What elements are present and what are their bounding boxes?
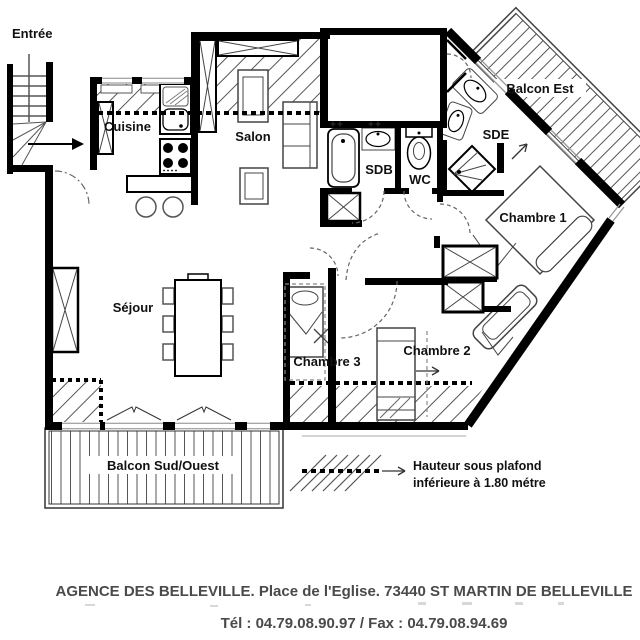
door-arc-hall xyxy=(346,233,380,280)
wall xyxy=(320,220,362,227)
room-label-sdb: SDB xyxy=(365,162,392,177)
window xyxy=(175,422,235,430)
balcony-east xyxy=(468,8,640,207)
chair-icon xyxy=(163,316,174,332)
wall-salon-east xyxy=(320,32,328,128)
room-label-chambre3: Chambre 3 xyxy=(293,354,360,369)
chair-icon xyxy=(222,344,233,360)
wall xyxy=(401,188,409,194)
wardrobe-icon xyxy=(443,282,483,312)
wall-shower xyxy=(440,190,504,196)
room-label-balcon-sud-ouest: Balcon Sud/Ouest xyxy=(107,458,220,473)
chair-icon xyxy=(163,344,174,360)
dining-table-icon xyxy=(163,274,233,376)
wall xyxy=(443,278,497,282)
room-label-chambre2: Chambre 2 xyxy=(403,343,470,358)
door-arc-wc xyxy=(404,191,432,219)
floor-plan-page: Entrée Cuisine Salon Séjour SDB WC SDE C… xyxy=(0,0,640,640)
room-label-salon: Salon xyxy=(235,129,270,144)
wall-shower xyxy=(497,143,504,173)
wall-storeroom-north xyxy=(320,28,447,35)
sejour-furniture xyxy=(52,268,233,376)
kitchen-sink-icon xyxy=(160,84,191,134)
door-arc-entrance xyxy=(55,171,89,205)
wall-left xyxy=(45,165,53,430)
wardrobe-icon xyxy=(443,246,497,278)
armchair-icon xyxy=(240,168,268,204)
cupboard-icon xyxy=(199,40,216,132)
wall xyxy=(434,236,440,248)
washbasin-icon xyxy=(362,128,395,150)
chair-icon xyxy=(163,288,174,304)
wall xyxy=(7,64,13,174)
entry-arrow-head xyxy=(72,138,84,150)
window xyxy=(105,422,163,430)
room-label-entree: Entrée xyxy=(12,26,52,41)
stove-icon xyxy=(160,139,191,174)
wall-chambre2-north xyxy=(365,278,448,285)
room-label-sejour: Séjour xyxy=(113,300,153,315)
window-opening-symbol xyxy=(107,407,231,420)
legend-arrow-icon xyxy=(382,467,405,475)
footer-ghost-marks xyxy=(85,602,564,607)
room-label-cuisine: Cuisine xyxy=(104,119,151,134)
chair-icon xyxy=(222,288,233,304)
wall-salon-north xyxy=(191,32,330,39)
window xyxy=(102,77,132,84)
wall xyxy=(46,62,53,122)
wall-chambre2-west xyxy=(328,268,336,430)
counter-icon xyxy=(127,176,193,192)
room-label-chambre1: Chambre 1 xyxy=(499,210,566,225)
wall-shower xyxy=(440,140,447,195)
stool-icon xyxy=(136,197,156,217)
window xyxy=(142,77,184,84)
door-arc-chambre1 xyxy=(440,204,470,234)
single-bed-icon xyxy=(287,287,323,357)
room-label-sde: SDE xyxy=(483,127,510,142)
bathtub-icon xyxy=(328,129,359,187)
wall-storeroom-east xyxy=(440,28,447,128)
bunk-bed-icon xyxy=(377,328,415,420)
footer: AGENCE DES BELLEVILLE. Place de l'Eglise… xyxy=(55,583,632,632)
room-label-wc: WC xyxy=(409,172,431,187)
window xyxy=(62,422,100,430)
wardrobe-icon xyxy=(218,40,298,56)
room-label-balcon-est: Balcon Est xyxy=(506,81,574,96)
wall-chambre3-west xyxy=(283,276,290,430)
wall xyxy=(483,306,511,312)
wardrobe-icon xyxy=(52,268,78,352)
wall xyxy=(384,188,402,194)
window xyxy=(609,204,624,221)
toilet-icon xyxy=(406,127,432,169)
chair-icon xyxy=(222,316,233,332)
stool-icon xyxy=(163,197,183,217)
legend-text-line1: Hauteur sous plafond xyxy=(413,459,541,473)
window xyxy=(247,422,270,430)
wall-kitchen-east xyxy=(191,32,198,205)
footer-agency-line: AGENCE DES BELLEVILLE. Place de l'Eglise… xyxy=(55,583,632,600)
cabinet-icon xyxy=(101,85,132,93)
low-ceiling-sejour-corner xyxy=(52,380,101,422)
arrow-icon xyxy=(512,144,527,159)
wall-kitchen-west xyxy=(90,77,97,170)
legend-text-line2: inférieure à 1.80 métre xyxy=(413,476,546,490)
chambre3-furniture xyxy=(287,287,328,357)
legend: Hauteur sous plafond inférieure à 1.80 m… xyxy=(290,455,546,491)
footer-phone-line: Tél : 04.79.08.90.97 / Fax : 04.79.08.94… xyxy=(221,615,508,632)
shower-icon xyxy=(449,146,495,192)
floor-plan: Entrée Cuisine Salon Séjour SDB WC SDE C… xyxy=(0,0,640,640)
closet-icon xyxy=(327,193,360,221)
wall-sdb-wc xyxy=(395,128,401,192)
wc-fixtures xyxy=(406,127,432,169)
